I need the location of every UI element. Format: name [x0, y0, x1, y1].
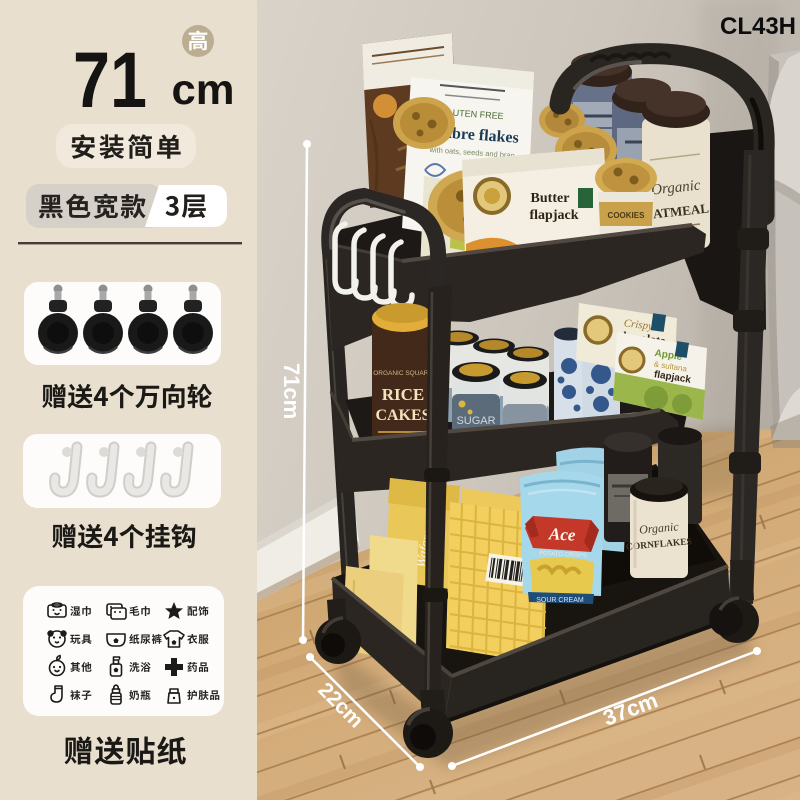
svg-text:Butter: Butter — [531, 191, 570, 206]
svg-text:CAKES: CAKES — [375, 407, 430, 424]
svg-text:Ace: Ace — [548, 524, 577, 544]
svg-text:RICE: RICE — [382, 385, 425, 404]
svg-text:cm: cm — [172, 66, 235, 114]
svg-text:COOKIES: COOKIES — [608, 211, 646, 220]
svg-text:CL43H: CL43H — [720, 13, 796, 40]
svg-text:71cm: 71cm — [279, 363, 304, 419]
svg-text:flapjack: flapjack — [530, 208, 579, 223]
svg-text:71: 71 — [73, 35, 147, 124]
svg-text:SOUR CREAM: SOUR CREAM — [536, 597, 584, 604]
svg-text:ORGANIC SQUARE: ORGANIC SQUARE — [373, 370, 433, 377]
svg-text:SUGAR: SUGAR — [456, 415, 495, 427]
